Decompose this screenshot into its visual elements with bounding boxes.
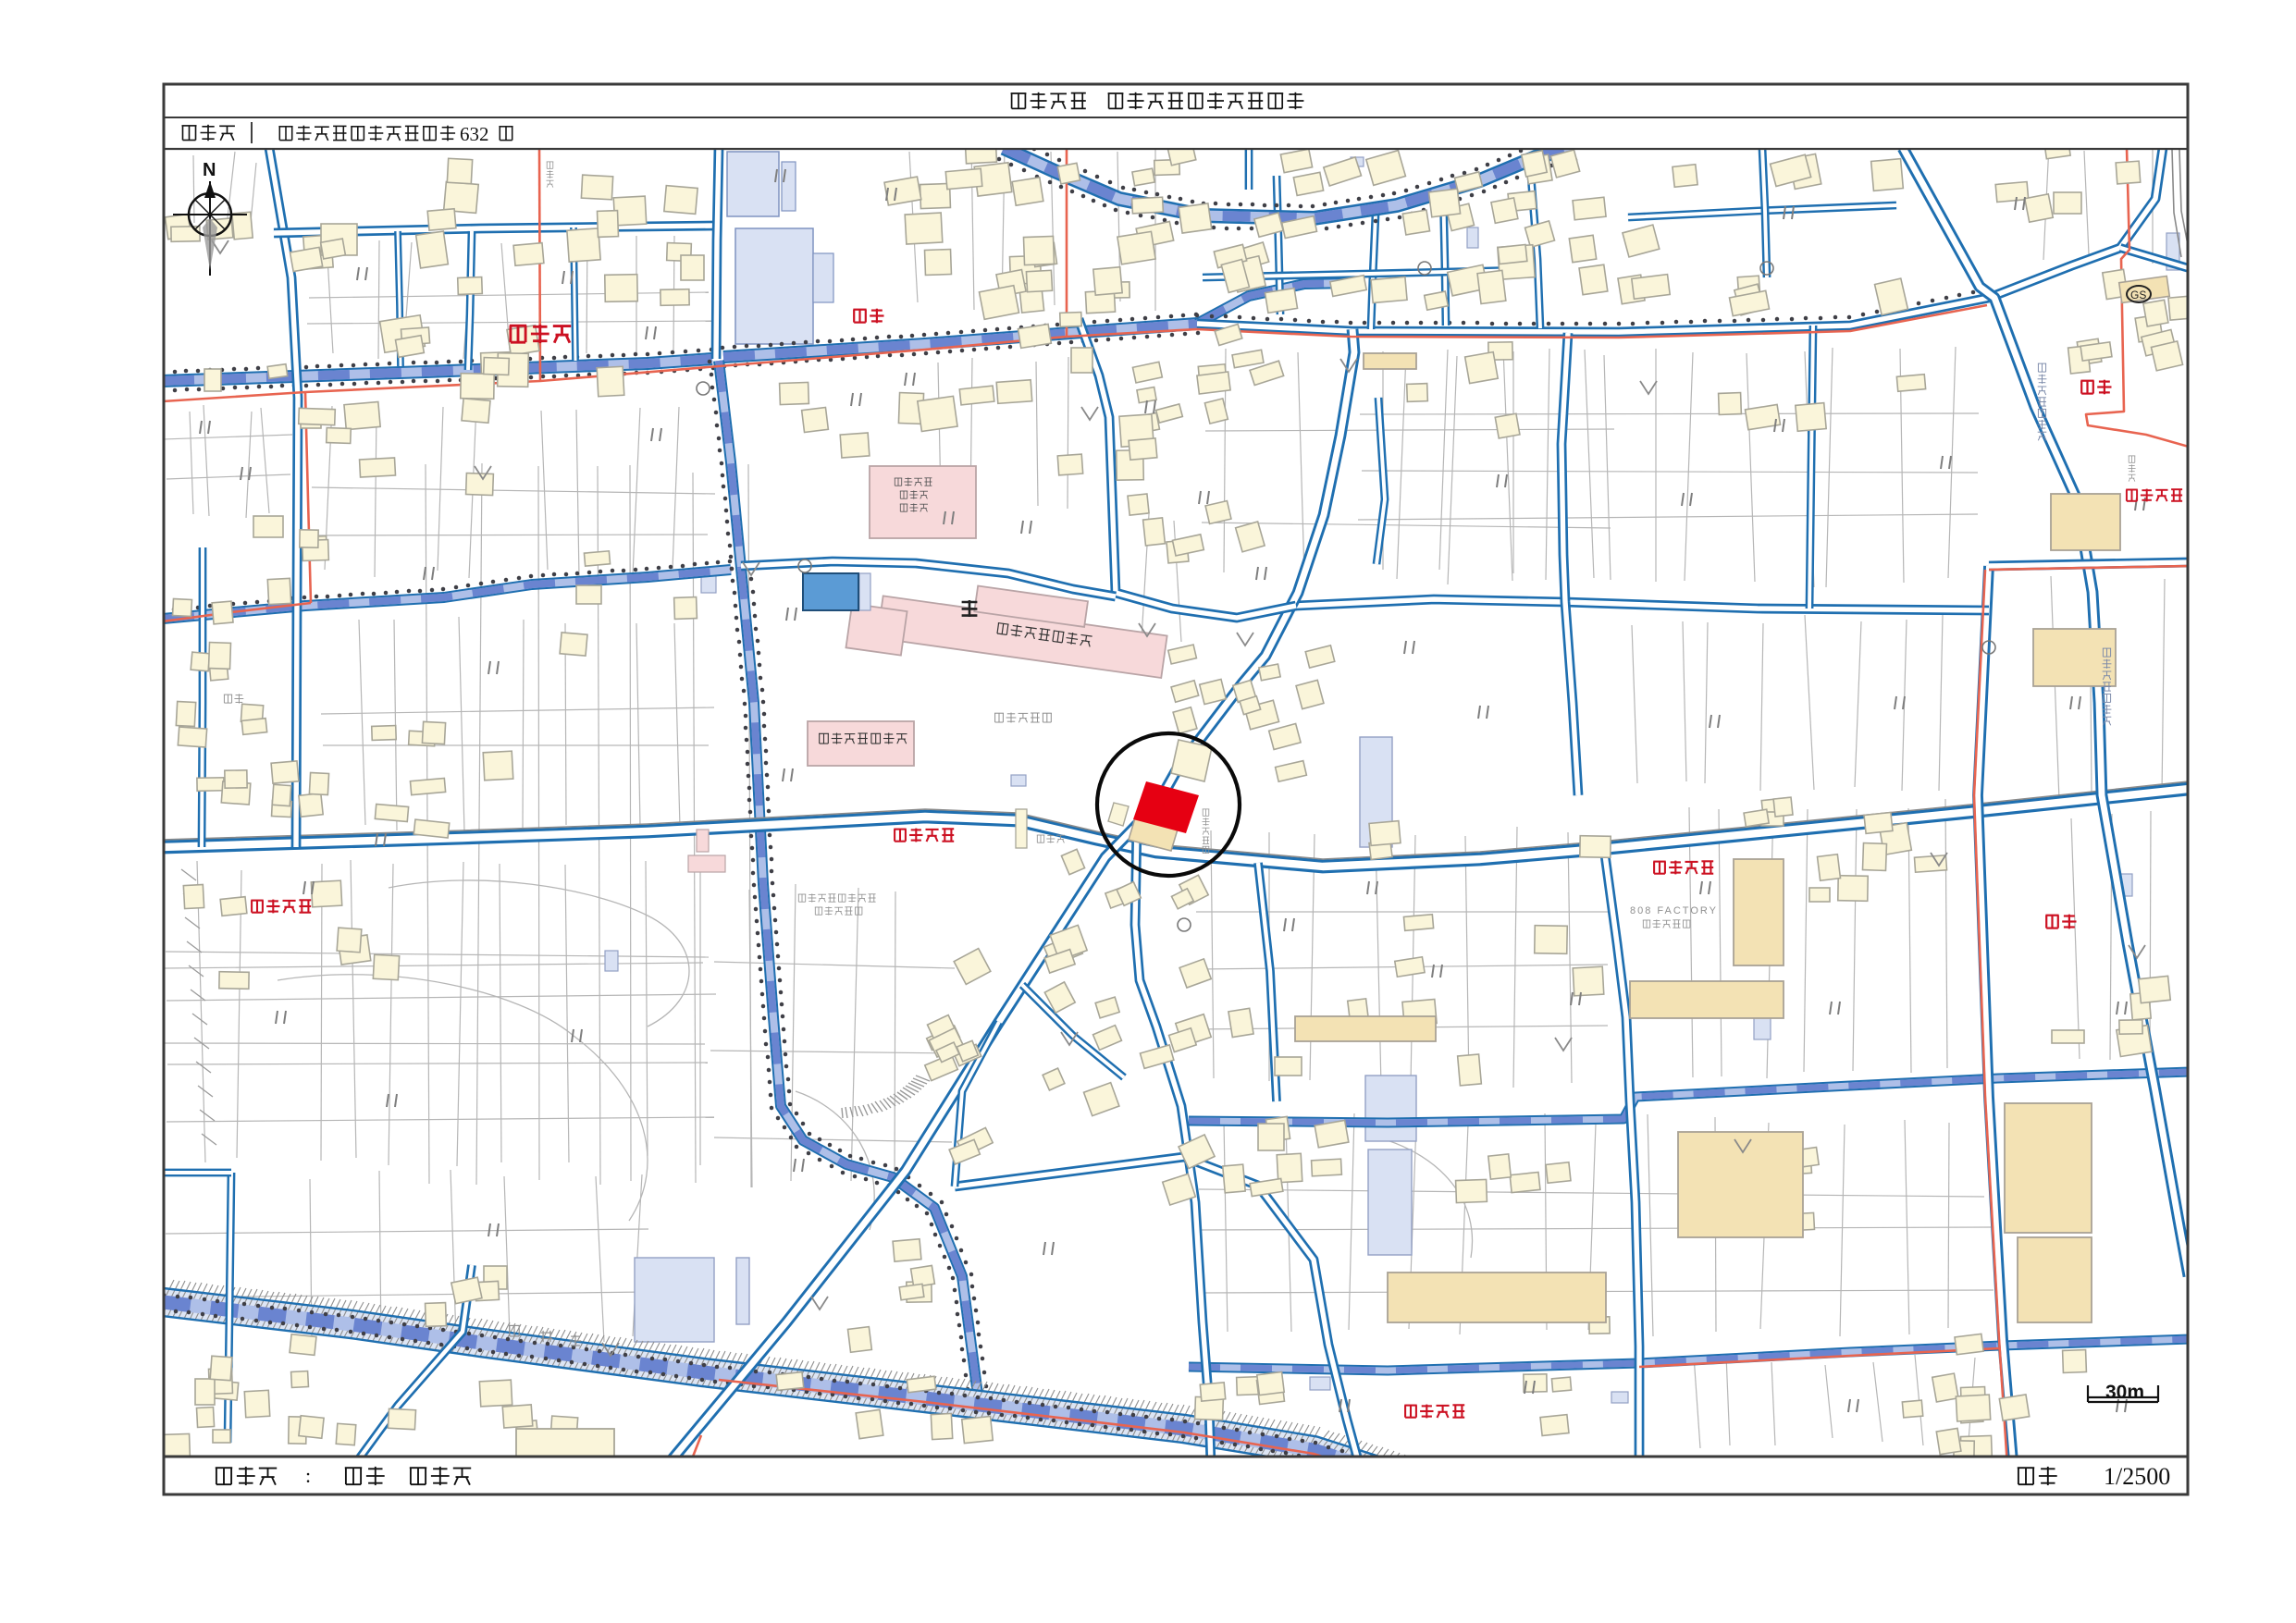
svg-text:632: 632	[460, 123, 489, 145]
svg-text::: :	[305, 1464, 311, 1487]
svg-text:30m: 30m	[2105, 1382, 2144, 1403]
svg-text:N: N	[203, 160, 216, 180]
svg-text:808 FACTORY: 808 FACTORY	[1630, 905, 1718, 916]
svg-text:1/2500: 1/2500	[2104, 1463, 2170, 1490]
svg-text:GS: GS	[2130, 289, 2146, 301]
